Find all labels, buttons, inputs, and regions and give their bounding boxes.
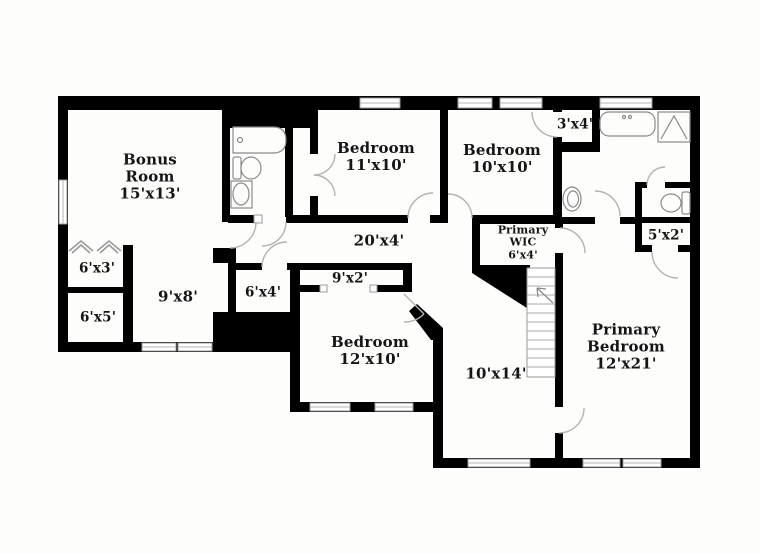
room-label-bedroom-11x10: Bedroom 11'x10' [337,140,415,174]
door-swing-icon [652,252,678,278]
door-jamb [320,285,327,292]
door-swing-icon [559,408,584,433]
room-label-bedroom-10x10: Bedroom 10'x10' [463,142,541,176]
door-swing-icon [560,228,585,253]
door-swing-icon [532,112,557,137]
door-jamb [254,215,262,223]
sink-basin [568,191,579,207]
toilet-icon [241,157,261,179]
room-label-closet-3x4: 3'x4' [557,117,593,132]
room-label-closet-5x2: 5'x2' [648,228,684,243]
bathtub-icon [600,112,655,136]
toilet-icon [661,194,681,212]
room-label-hallway-20x4: 20'x4' [354,233,405,250]
sink-icon [233,183,249,205]
room-label-primary-bedroom: Primary Bedroom 12'x21' [587,322,665,373]
door-jamb [370,285,377,292]
room-label-area-9x8: 9'x8' [158,289,198,306]
room-label-bedroom-12x10: Bedroom 12'x10' [331,334,409,368]
staircase-icon [527,268,555,377]
faucet-icon [238,138,243,143]
attic-chevrons [69,241,121,253]
door-swing-icon [314,175,335,196]
door-swing-icon [408,193,433,218]
room-label-area-10x14: 10'x14' [465,366,526,383]
door-swing-icon [595,191,620,216]
door-swing-icon [314,154,335,175]
room-label-closet-6x5: 6'x5' [80,310,116,325]
door-swing-icon [647,167,665,185]
room-label-closet-6x3: 6'x3' [79,261,115,276]
room-label-bonus-room: Bonus Room 15'x13' [119,152,180,203]
toilet-tank [233,157,241,179]
toilet-tank [682,192,690,214]
door-swing-icon [448,194,472,218]
faucet-icon [629,116,632,119]
room-label-primary-wic: Primary WIC 6'x4' [498,224,549,261]
faucet-icon [623,116,626,119]
room-label-closet-6x4: 6'x4' [245,285,281,300]
room-label-closet-9x2: 9'x2' [332,271,368,286]
door-swing-icon [230,222,256,248]
floor-plan: Bonus Room 15'x13' Bedroom 11'x10' Bedro… [0,0,760,553]
